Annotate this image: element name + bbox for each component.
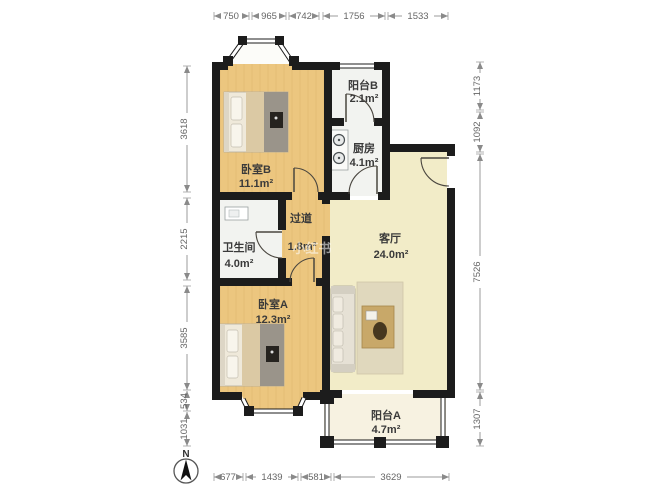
dim-right-1307: 1307 [472, 408, 483, 429]
dim-left-534: 534 [179, 393, 190, 409]
area-bathroom: 4.0m² [225, 258, 254, 270]
label-kitchen: 厨房 [353, 141, 375, 155]
dim-top-1756: 1756 [343, 11, 364, 22]
floor-plan-canvas: 卧室B 11.1m² 阳台B 2.1m² 厨房 4.1m² 卫生间 4.0m² … [0, 0, 667, 500]
dim-left-2215: 2215 [179, 228, 190, 249]
north-needle [181, 460, 192, 481]
area-bedroom-b: 11.1m² [239, 178, 274, 190]
area-balcony-a: 4.7m² [372, 424, 401, 436]
wall-balconyb-kitchen-r [374, 118, 382, 126]
bed-bedroom-b [224, 92, 288, 152]
wall-living-top [382, 144, 455, 152]
label-hallway: 过道 [290, 211, 312, 225]
wall-bedroomb-bottom-l [212, 192, 292, 200]
wall-bedroomb-kitchen [324, 62, 332, 200]
label-balcony-a: 阳台A [371, 408, 401, 422]
label-bathroom: 卫生间 [223, 240, 256, 254]
wall-bedrooma-bottom-l [212, 392, 242, 400]
sofa [331, 286, 355, 372]
stove [330, 130, 348, 170]
watermark: 小红书 [292, 241, 331, 256]
wall-bathroom-right-a [278, 196, 286, 230]
wall-balconyb-top-l [332, 62, 340, 70]
dim-bottom-581: 581 [308, 472, 324, 483]
label-bedroom-b: 卧室B [241, 162, 271, 176]
label-living-room: 客厅 [378, 231, 401, 245]
north-arrow: N [174, 449, 198, 483]
dim-bottom-1439: 1439 [261, 472, 282, 483]
dim-left-3618: 3618 [179, 118, 190, 139]
wall-balconyb-top-r [374, 62, 382, 70]
label-bedroom-a: 卧室A [258, 297, 288, 311]
wall-balconya-stub [320, 390, 334, 404]
dim-left-3585: 3585 [179, 327, 190, 348]
wall-balconyb-kitchen-l [332, 118, 344, 126]
area-balcony-b: 2.1m² [350, 93, 379, 105]
label-balcony-b: 阳台B [348, 78, 378, 92]
coffee-table [362, 306, 394, 348]
dim-top-750: 750 [223, 11, 239, 22]
area-kitchen: 4.1m² [350, 157, 379, 169]
dim-top-965: 965 [261, 11, 277, 22]
wall-hall-bottom-r [316, 278, 330, 286]
dim-top-742: 742 [296, 11, 312, 22]
dim-top-1533: 1533 [407, 11, 428, 22]
dim-bottom-3629: 3629 [380, 472, 401, 483]
wall-kitchen-bottom-r [378, 192, 390, 200]
wall-left [212, 62, 220, 400]
wall-bedroomb-bottom-r [318, 192, 332, 200]
wall-bedrooma-living [322, 236, 330, 398]
wall-right [447, 188, 455, 398]
bathroom-sink [225, 207, 248, 220]
floor-plan-svg: 卧室B 11.1m² 阳台B 2.1m² 厨房 4.1m² 卫生间 4.0m² … [0, 0, 667, 500]
area-living-room: 24.0m² [374, 249, 409, 261]
wall-living-bottom-r [413, 390, 455, 398]
dim-left-1031: 1031 [179, 418, 190, 439]
dim-bottom-677: 677 [220, 472, 236, 483]
wall-kitchen-right [382, 62, 390, 200]
dim-right-1092: 1092 [472, 121, 483, 142]
area-bedroom-a: 12.3m² [256, 314, 291, 326]
dim-right-1173: 1173 [472, 76, 483, 96]
bed-bedroom-a [220, 324, 284, 386]
wall-bathroom-bottom [212, 278, 292, 286]
dim-right-7526: 7526 [472, 261, 483, 282]
